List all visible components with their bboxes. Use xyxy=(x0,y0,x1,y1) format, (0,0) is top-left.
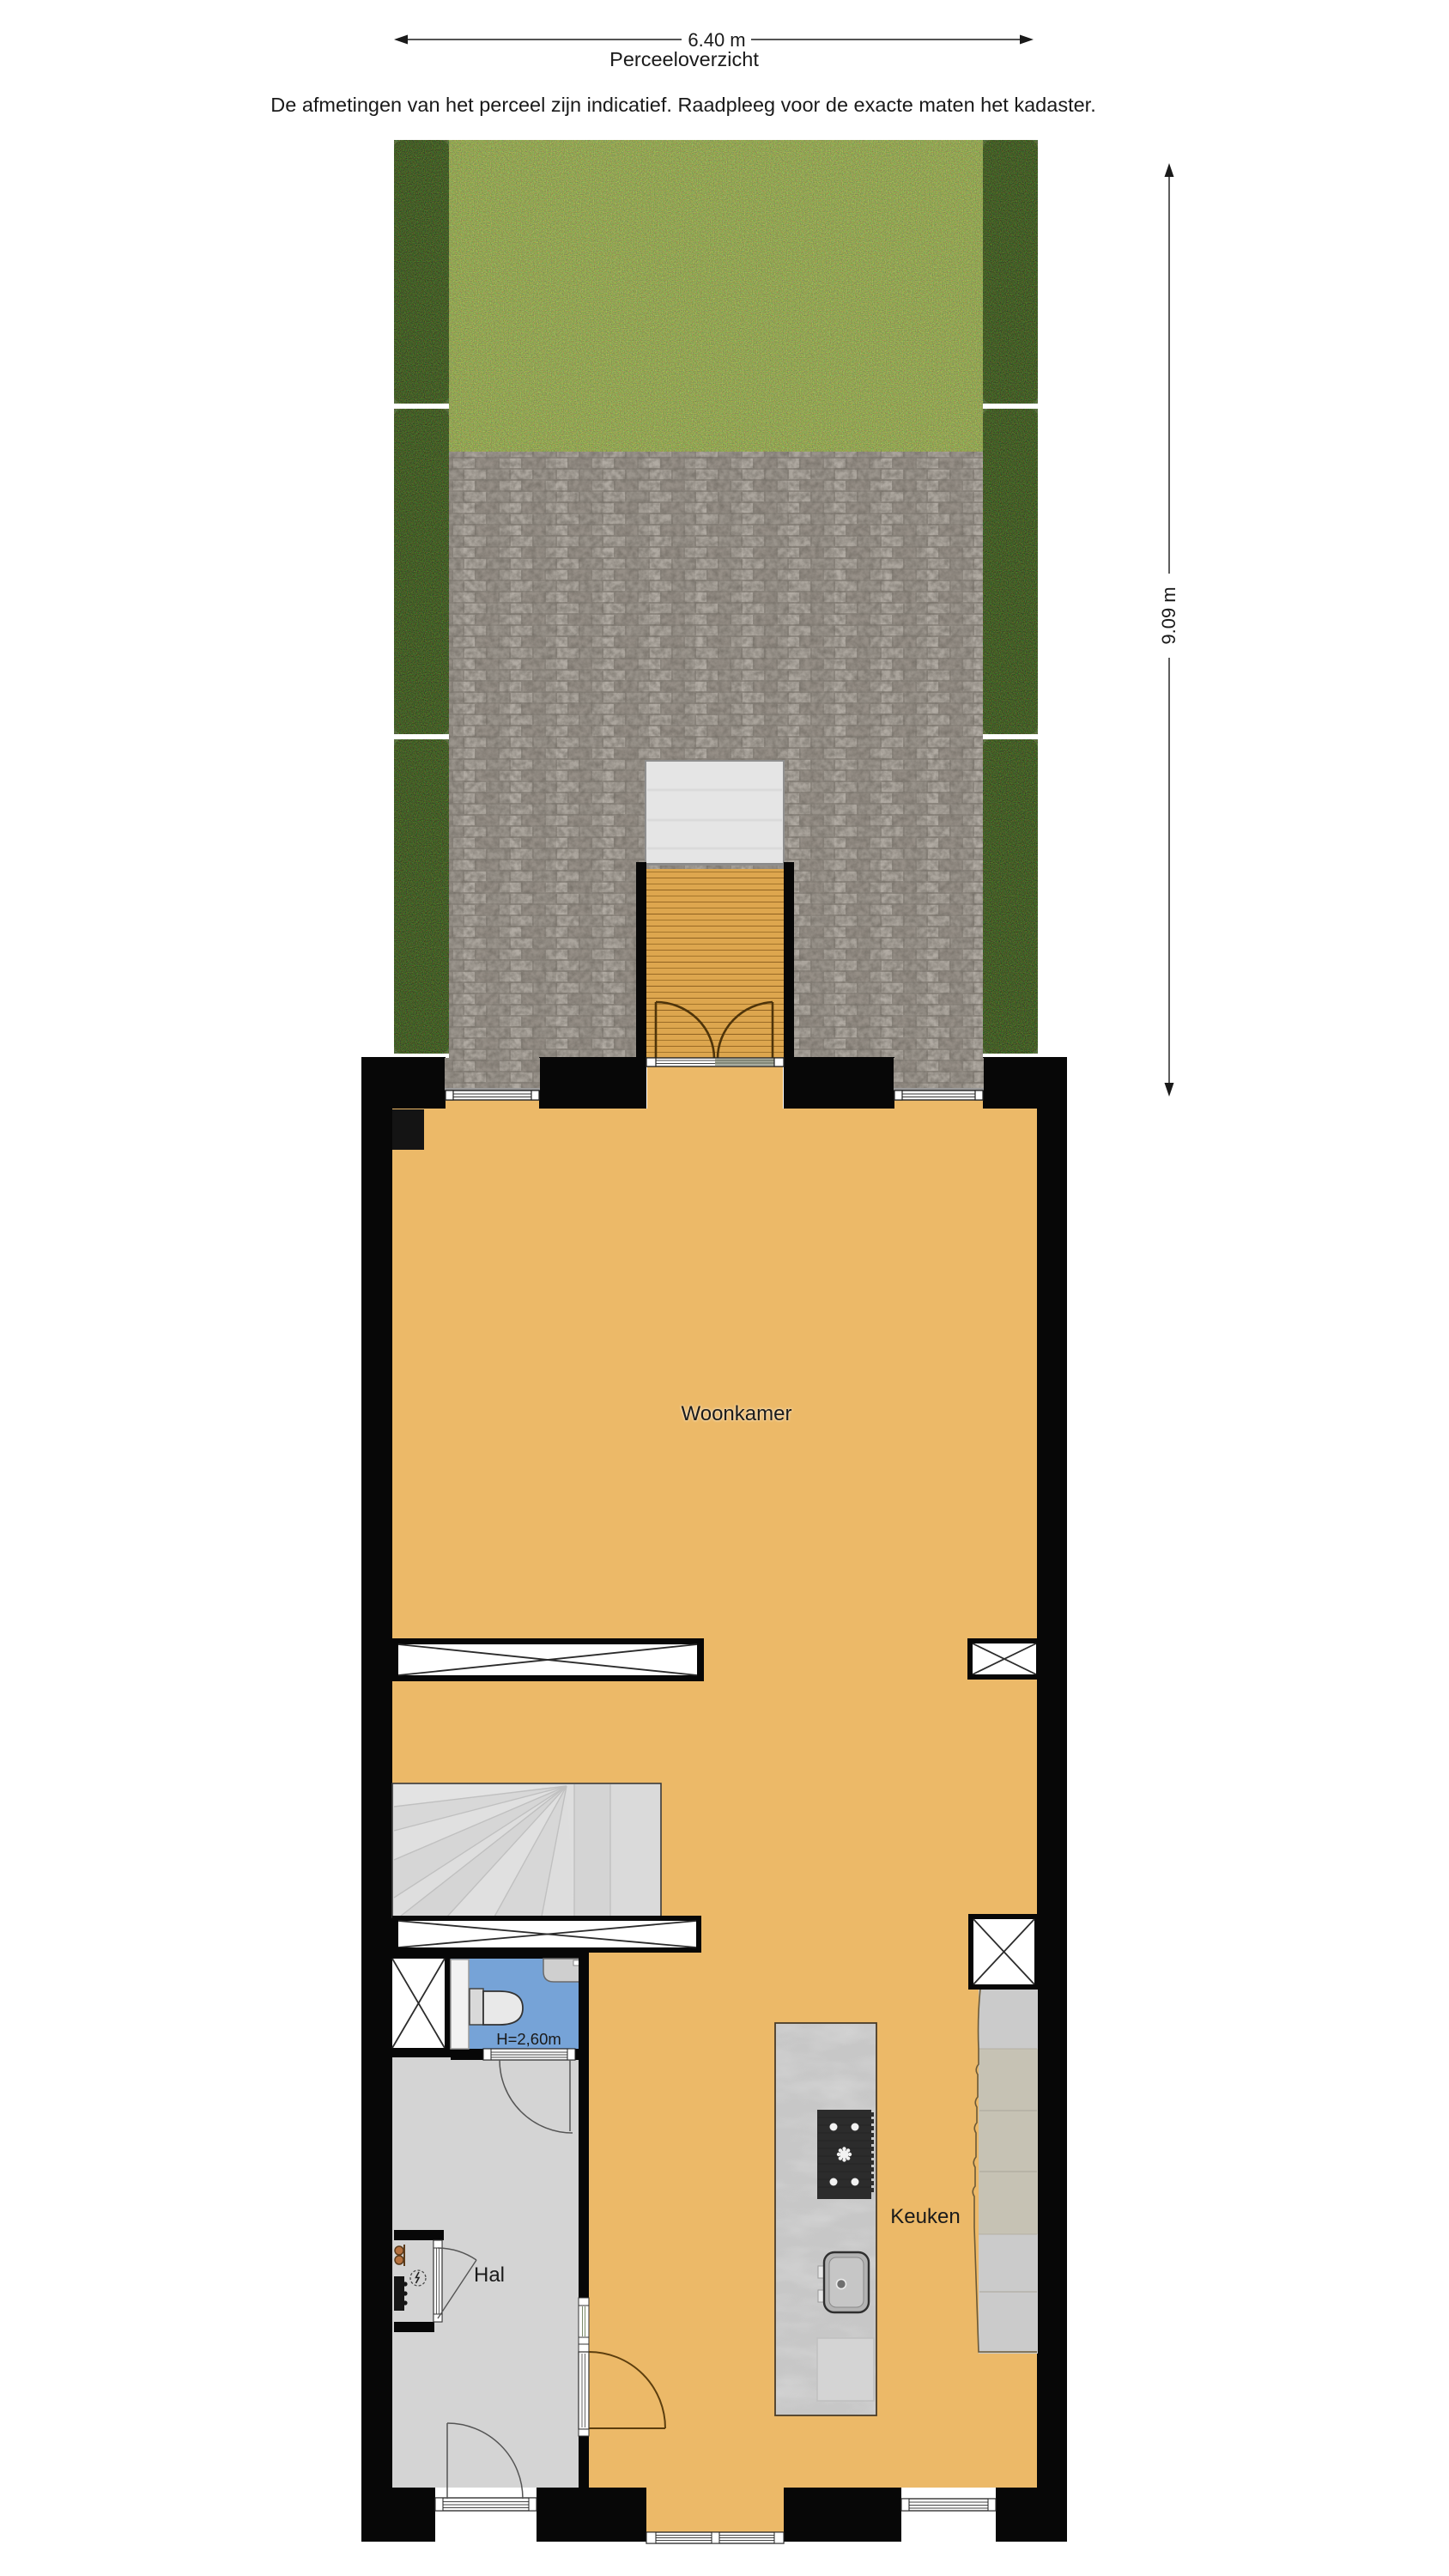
svg-text:De afmetingen van het perceel: De afmetingen van het perceel zijn indic… xyxy=(270,94,1095,116)
svg-text:Keuken: Keuken xyxy=(890,2205,960,2228)
svg-text:Perceeloverzicht: Perceeloverzicht xyxy=(609,48,759,70)
svg-text:9.09 m: 9.09 m xyxy=(1158,586,1179,644)
svg-text:H=2,60m: H=2,60m xyxy=(496,2030,561,2048)
svg-text:Hal: Hal xyxy=(474,2263,505,2287)
svg-text:Woonkamer: Woonkamer xyxy=(682,1402,792,1425)
